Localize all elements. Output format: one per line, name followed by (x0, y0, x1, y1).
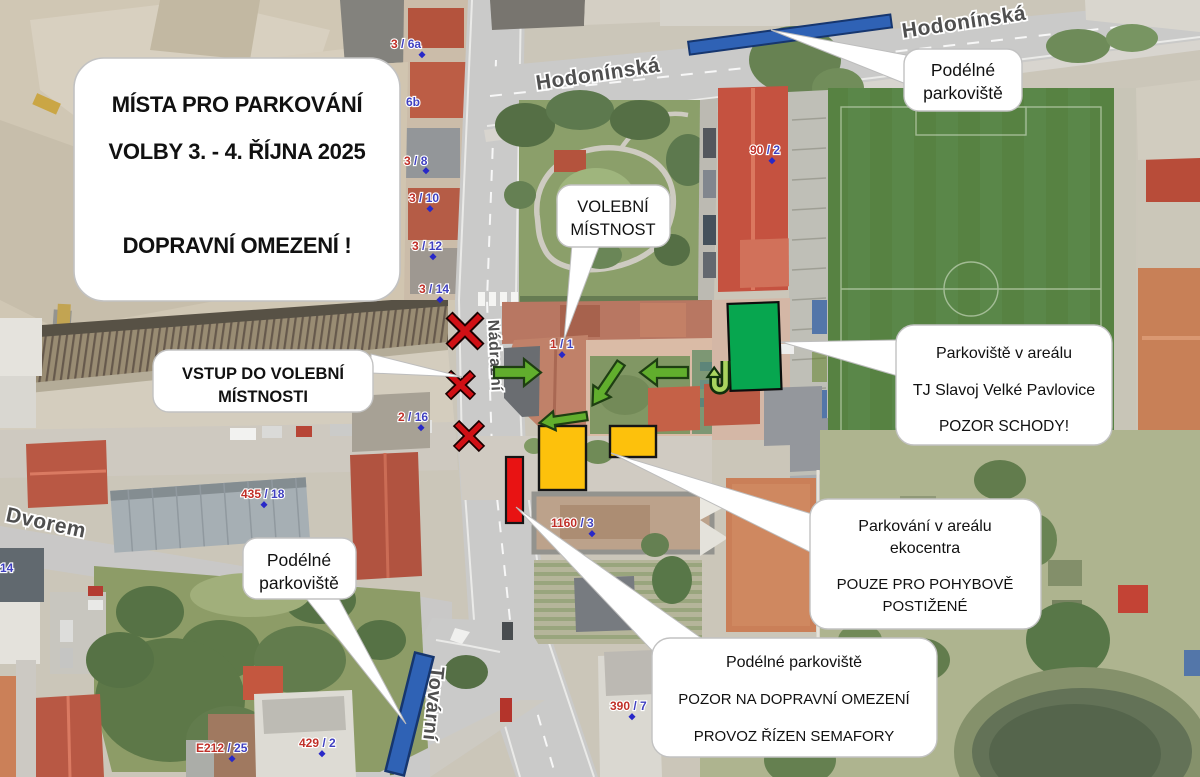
svg-text:Parkoviště v areálu: Parkoviště v areálu (936, 345, 1072, 362)
svg-text:390 / 7: 390 / 7 (610, 699, 647, 713)
svg-text:3 / 14: 3 / 14 (419, 282, 449, 296)
svg-text:14: 14 (0, 561, 14, 575)
svg-text:2 / 16: 2 / 16 (398, 410, 428, 424)
svg-text:VSTUP DO VOLEBNÍ: VSTUP DO VOLEBNÍ (182, 364, 344, 383)
svg-text:MÍSTNOST: MÍSTNOST (570, 220, 655, 239)
svg-text:Parkování v areálu: Parkování v areálu (858, 518, 991, 535)
svg-text:3 / 10: 3 / 10 (409, 191, 439, 205)
svg-text:MÍSTA PRO PARKOVÁNÍ: MÍSTA PRO PARKOVÁNÍ (112, 92, 364, 117)
svg-text:POUZE PRO POHYBOVĚ: POUZE PRO POHYBOVĚ (837, 576, 1014, 593)
svg-text:POZOR SCHODY!: POZOR SCHODY! (939, 418, 1069, 435)
svg-text:Podélné parkoviště: Podélné parkoviště (726, 654, 862, 671)
svg-text:VOLEBNÍ: VOLEBNÍ (577, 197, 649, 216)
svg-text:Podélné: Podélné (267, 550, 331, 570)
svg-text:3 / 12: 3 / 12 (412, 239, 442, 253)
svg-text:1160 / 3: 1160 / 3 (551, 516, 594, 530)
svg-text:parkoviště: parkoviště (923, 83, 1003, 103)
svg-text:MÍSTNOSTI: MÍSTNOSTI (218, 387, 308, 406)
svg-text:PROVOZ ŘÍZEN SEMAFORY: PROVOZ ŘÍZEN SEMAFORY (694, 728, 895, 745)
svg-text:90 / 2: 90 / 2 (750, 143, 780, 157)
svg-text:POSTIŽENÉ: POSTIŽENÉ (882, 598, 967, 615)
svg-text:parkoviště: parkoviště (259, 573, 339, 593)
svg-text:VOLBY 3. - 4. ŘÍJNA 2025: VOLBY 3. - 4. ŘÍJNA 2025 (109, 139, 366, 164)
svg-text:TJ Slavoj Velké Pavlovice: TJ Slavoj Velké Pavlovice (913, 382, 1095, 399)
svg-text:POZOR NA DOPRAVNÍ OMEZENÍ: POZOR NA DOPRAVNÍ OMEZENÍ (678, 691, 910, 708)
svg-text:E212 / 25: E212 / 25 (196, 741, 248, 755)
svg-text:Podélné: Podélné (931, 60, 995, 80)
svg-text:1 / 1: 1 / 1 (550, 337, 574, 351)
svg-text:3 / 6a: 3 / 6a (391, 37, 421, 51)
svg-text:429 / 2: 429 / 2 (299, 736, 336, 750)
svg-text:ekocentra: ekocentra (890, 540, 960, 557)
svg-text:3 / 8: 3 / 8 (404, 154, 428, 168)
svg-text:435 / 18: 435 / 18 (241, 487, 285, 501)
svg-text:DOPRAVNÍ OMEZENÍ !: DOPRAVNÍ OMEZENÍ ! (123, 233, 352, 258)
svg-text:6b: 6b (406, 95, 420, 109)
